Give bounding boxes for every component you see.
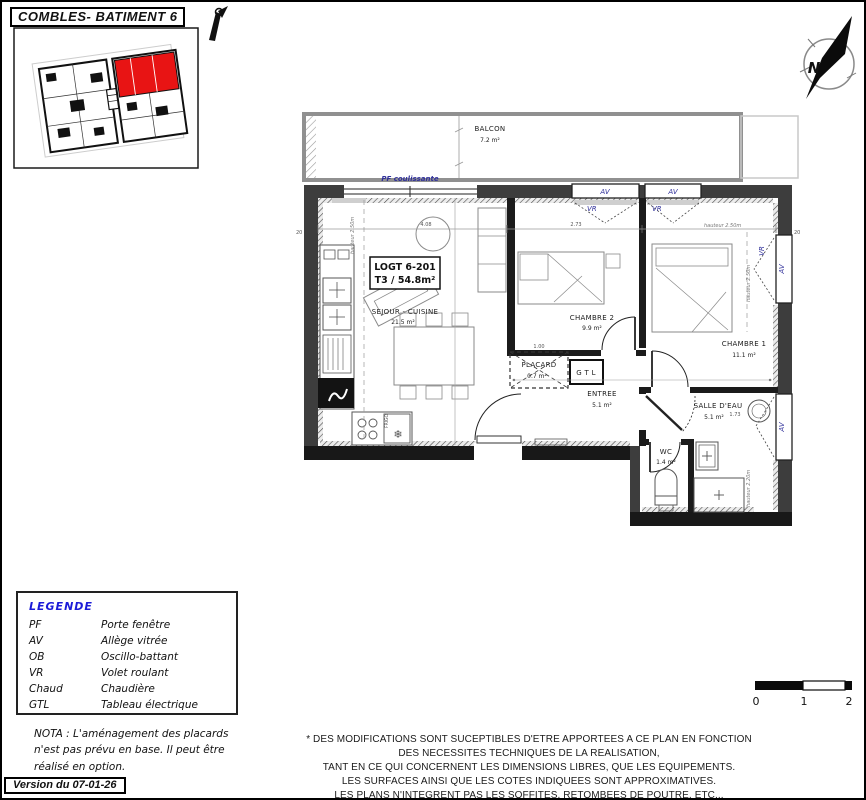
scale-1: 1	[801, 695, 808, 708]
nota-line: réalisé en option.	[34, 759, 254, 775]
entree-area: 5.1 m²	[592, 402, 612, 409]
legend-label: Chaudière	[101, 683, 155, 699]
sheet-title: COMBLES- BATIMENT 6	[10, 7, 185, 27]
window-av-right-2: AV	[756, 394, 792, 460]
av-label: AV	[778, 421, 786, 432]
dim-label: 1.00	[533, 344, 544, 350]
chambre1-label: CHAMBRE 1	[722, 340, 766, 348]
chambre2-area: 9.9 m²	[582, 325, 602, 332]
key-plan-inset	[14, 28, 198, 168]
sejour-area: 21.5 m²	[391, 319, 415, 326]
height-note: hauteur 2.50m	[704, 223, 741, 229]
entree-label: ENTREE	[587, 390, 616, 398]
nota-line: n'est pas prévu en base. Il peut être	[34, 742, 254, 758]
unit-type-area: T3 / 54.8m²	[375, 275, 436, 286]
dim-label: 2.73	[570, 222, 581, 228]
water-heater	[748, 400, 770, 422]
legend-box: LEGENDE PF Porte fenêtre AV Allège vitré…	[16, 591, 238, 715]
snowflake-icon: ❄	[393, 428, 402, 441]
wc-area: 1.4 m²	[656, 459, 676, 466]
window-sill	[332, 198, 366, 203]
toilet	[655, 469, 677, 511]
legend-code: AV	[29, 635, 101, 651]
legend-label: Allège vitrée	[101, 635, 167, 651]
sejour-furniture	[363, 208, 506, 399]
frigo-label: FRIGO	[384, 413, 390, 428]
dining-table	[394, 327, 474, 385]
salle-deau-area: 5.1 m²	[704, 414, 724, 421]
scale-bar: 0 1 2	[753, 681, 853, 708]
dim-label: 1.73	[729, 412, 740, 418]
legend-code: PF	[29, 619, 101, 635]
height-note: hauteur 2.50m	[746, 265, 752, 302]
wardrobe	[478, 208, 506, 292]
av-label: AV	[667, 188, 678, 196]
disclaimer: * DES MODIFICATIONS SONT SUCEPTIBLES D'E…	[290, 733, 768, 800]
disclaimer-line: LES PLANS N'INTEGRENT PAS LES SOFFITES, …	[290, 789, 768, 800]
wc-label: WC	[660, 448, 672, 456]
window-av-top-2: AV VR	[645, 184, 701, 223]
av-label: AV	[778, 263, 786, 274]
legend-row: PF Porte fenêtre	[18, 619, 236, 635]
disclaimer-line: DES NECESSITES TECHNIQUES DE LA REALISAT…	[290, 747, 768, 761]
legend-label: Porte fenêtre	[101, 619, 170, 635]
gtl-label: G T L	[576, 369, 596, 377]
unit-label-box: LOGT 6-201 T3 / 54.8m²	[370, 257, 440, 289]
legend-code: GTL	[29, 699, 101, 715]
vr-label: VR	[652, 205, 662, 213]
balcony: BALCON 7.2 m²	[304, 114, 798, 180]
window-av-right-1: AV VR	[754, 235, 792, 303]
legend-label: Tableau électrique	[101, 699, 198, 715]
legend-code: OB	[29, 651, 101, 667]
scale-2: 2	[846, 695, 853, 708]
legend-code: VR	[29, 667, 101, 683]
version-box: Version du 07-01-26	[4, 777, 126, 794]
pf-coulissante-label: PF coulissante	[381, 175, 438, 183]
north-arrow: N	[800, 16, 856, 99]
legend-row: OB Oscillo-battant	[18, 651, 236, 667]
legend-row: VR Volet roulant	[18, 667, 236, 683]
disclaimer-line: LES SURFACES AINSI QUE LES COTES INDIQUE…	[290, 775, 768, 789]
legend-row: Chaud Chaudière	[18, 683, 236, 699]
legend-label: Oscillo-battant	[101, 651, 178, 667]
nota-note: NOTA : L'aménagement des placards n'est …	[34, 726, 254, 775]
scale-0: 0	[753, 695, 760, 708]
legend-row: AV Allège vitrée	[18, 635, 236, 651]
north-label: N	[808, 59, 821, 77]
balcon-label: BALCON	[475, 125, 506, 133]
dim-label: 20	[794, 230, 800, 236]
height-note: hauteur 2.50m	[350, 217, 356, 254]
balcon-area: 7.2 m²	[480, 137, 500, 144]
sejour-label: SEJOUR - CUISINE	[372, 308, 438, 316]
gtl-box: G T L	[570, 360, 603, 384]
disclaimer-line: TANT EN CE QUI CONCERNENT LES DIMENSIONS…	[290, 761, 768, 775]
chambre1-area: 11.1 m²	[732, 352, 756, 359]
placard-area: 0.7 m²	[527, 373, 547, 380]
dim-label: 20	[296, 230, 302, 236]
disclaimer-line: * DES MODIFICATIONS SONT SUCEPTIBLES D'E…	[290, 733, 768, 747]
legend-code: Chaud	[29, 683, 101, 699]
legend-row: GTL Tableau électrique	[18, 699, 236, 715]
unit-id: LOGT 6-201	[374, 262, 436, 273]
chambre2-label: CHAMBRE 2	[570, 314, 614, 322]
vr-label: VR	[587, 205, 597, 213]
compass-icon	[209, 6, 228, 41]
highlighted-unit	[114, 52, 179, 97]
salle-deau-label: SALLE D'EAU	[694, 402, 743, 410]
nota-line: NOTA : L'aménagement des placards	[34, 726, 254, 742]
window-av-top-1: AV VR	[572, 184, 639, 223]
vr-label: VR	[758, 246, 766, 256]
height-note: hauteur 2.20m	[746, 470, 752, 507]
legend-title: LEGENDE	[29, 600, 236, 613]
legend-label: Volet roulant	[101, 667, 168, 683]
dim-label: 4.08	[420, 222, 431, 228]
av-label: AV	[599, 188, 610, 196]
plan-sheet: COMBLES- BATIMENT 6	[0, 0, 866, 800]
placard-label: PLACARD	[522, 361, 557, 369]
